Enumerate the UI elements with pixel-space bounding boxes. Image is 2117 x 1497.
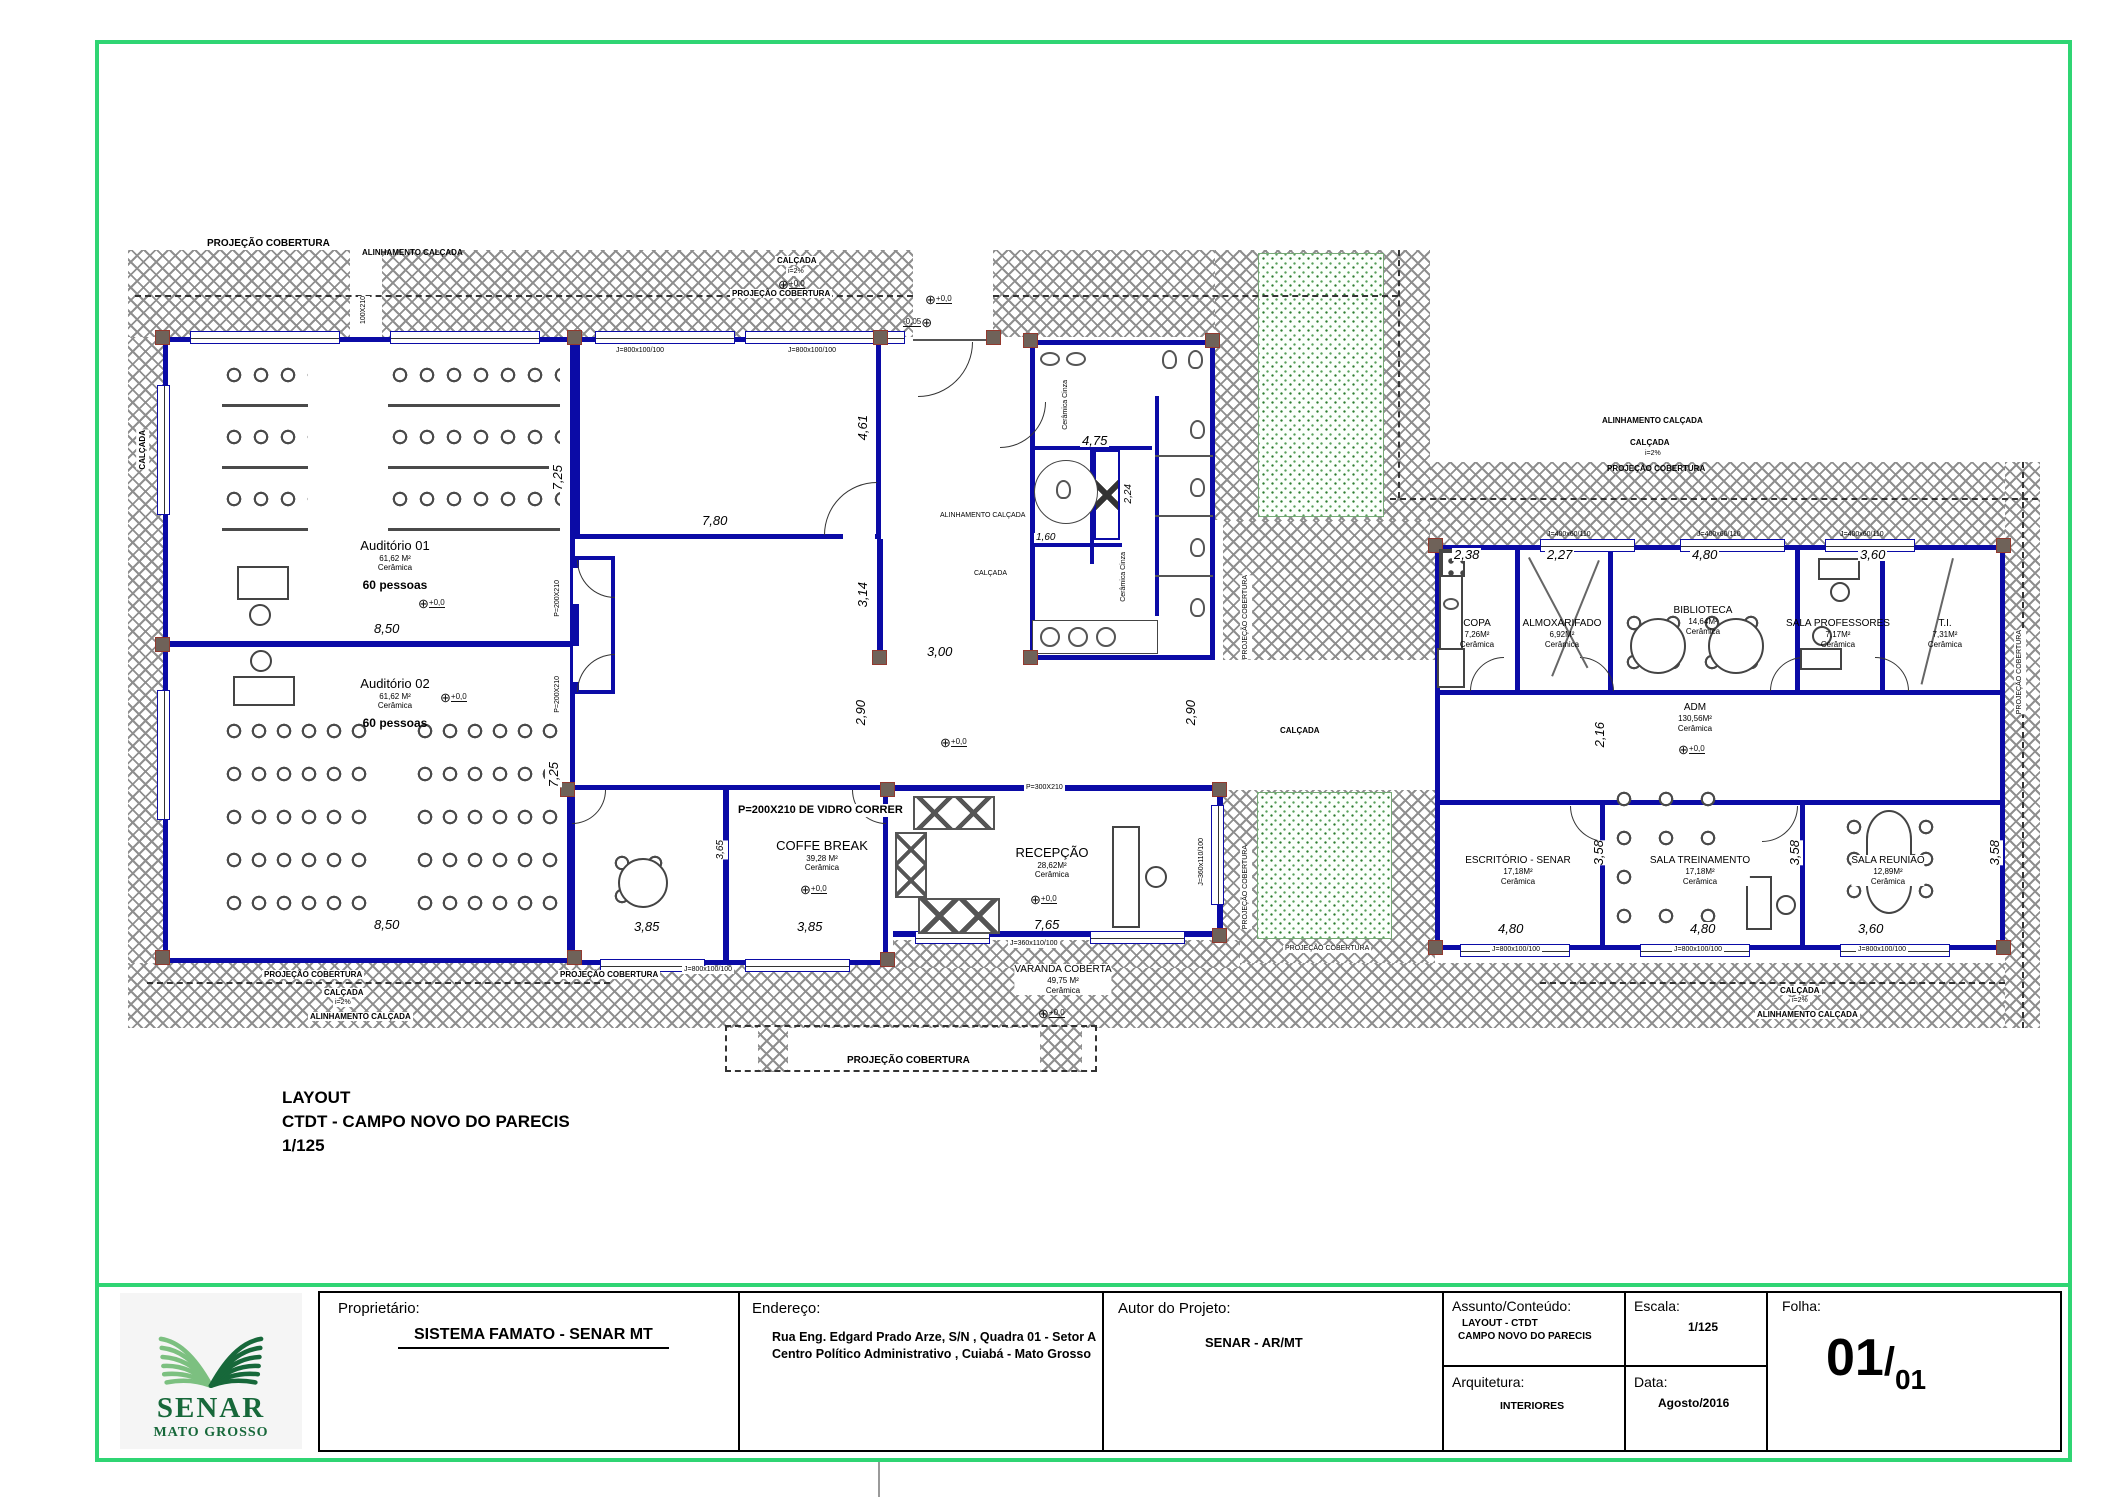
toilet [1190, 478, 1205, 497]
sheet-label: Folha: [1782, 1298, 1821, 1314]
fridge [1437, 648, 1465, 688]
shaft [1094, 450, 1120, 540]
site-label: CALÇADA [1778, 986, 1822, 995]
senar-logo: SENAR MATO GROSSO [120, 1293, 302, 1449]
toilet [1188, 350, 1203, 369]
door-tag: P=200X210 [552, 676, 564, 713]
sink [1068, 627, 1088, 647]
level-mark: ⊕+0,0 [1030, 892, 1057, 908]
projection-line [2022, 462, 2024, 1028]
dimension: 4,80 [1688, 922, 1717, 935]
dimension: 3,58 [1590, 840, 1607, 865]
column-cap [1428, 940, 1443, 955]
site-label: PROJEÇÃO COBERTURA [558, 970, 660, 979]
chair-grid [222, 718, 374, 930]
column-cap [567, 950, 582, 965]
titleblock-divider [1624, 1291, 1626, 1452]
level-mark: ⊕+0,0 [800, 882, 827, 898]
dimension: 3,85 [795, 920, 824, 933]
sheet-number: 01/01 [1826, 1328, 1926, 1396]
wall [1515, 545, 1520, 695]
column-cap [1023, 650, 1038, 665]
level-mark: -0,05⊕ [903, 315, 932, 331]
column-cap [880, 952, 895, 967]
subject-label: Assunto/Conteúdo: [1452, 1298, 1571, 1314]
sidewalk-hatch [382, 250, 913, 337]
projection-line [1398, 250, 1400, 498]
address-line2: Centro Político Administrativo , Cuiabá … [772, 1347, 1091, 1361]
room-label-copa: COPA 7,26M² Cerâmica [1460, 618, 1494, 649]
dimension: 3,85 [632, 920, 661, 933]
drawing-title-line1: LAYOUT [282, 1086, 570, 1110]
sofa [895, 832, 927, 898]
door-tag: P=200X210 DE VIDRO CORRER [736, 804, 905, 817]
stall-divider [1155, 455, 1213, 457]
window-tag: J=360x110/100 [1196, 838, 1208, 886]
room-label-varanda: VARANDA COBERTA 49,75 M² Cerâmica [1014, 964, 1111, 995]
sink [1066, 352, 1086, 366]
room-label-reuniao: SALA REUNIÃO 12,89M² Cerâmica [1851, 855, 1924, 886]
window [1090, 931, 1185, 944]
column-cap [1212, 928, 1227, 943]
site-label: PROJEÇÃO COBERTURA [205, 238, 332, 250]
chair [1776, 895, 1796, 915]
door-tag: 100X210 [358, 296, 370, 324]
projection-line [1390, 498, 2038, 500]
date-label: Data: [1634, 1374, 1667, 1390]
room-label-treinamento: SALA TREINAMENTO 17,18M² Cerâmica [1650, 855, 1750, 886]
sidewalk-hatch [128, 250, 350, 337]
sink [1040, 352, 1060, 366]
wc-finish-note: Cerâmica Cinza [1060, 380, 1072, 430]
chair [249, 604, 271, 626]
site-label: ALINHAMENTO CALÇADA [360, 248, 465, 257]
dimension: 7,80 [700, 514, 729, 527]
wall [1435, 690, 2005, 695]
room-label-almoxarifado: ALMOXARIFADO 6,92M² Cerâmica [1523, 618, 1602, 649]
dimension: 3,60 [1856, 922, 1885, 935]
sink [1040, 627, 1060, 647]
column-cap [155, 330, 170, 345]
senar-logo-name: SENAR [120, 1394, 302, 1423]
level-mark: ⊕+0,0 [1678, 742, 1705, 758]
site-label: ALINHAMENTO CALÇADA [1600, 416, 1705, 425]
room-label-professores: SALA PROFESSORES 7,17M² Cerâmica [1786, 618, 1890, 649]
dimension: 3,14 [854, 582, 871, 607]
titleblock-divider [1102, 1291, 1104, 1452]
window [595, 331, 735, 344]
site-label: CALÇADA [775, 256, 819, 265]
author-value: SENAR - AR/MT [1205, 1335, 1303, 1350]
kitchen-sink [1443, 598, 1459, 610]
room-label-escritorio: ESCRITÓRIO - SENAR 17,18M² Cerâmica [1465, 855, 1571, 886]
chair [1830, 582, 1850, 602]
level-mark: ⊕+0,0 [940, 735, 967, 751]
window-tag: J=400x60/110 [1695, 531, 1743, 539]
column-cap [560, 782, 575, 797]
site-label: PROJEÇÃO COBERTURA [262, 970, 364, 979]
drawing-title: LAYOUT CTDT - CAMPO NOVO DO PARECIS 1/12… [282, 1086, 570, 1157]
window-tag: J=800x100/100 [614, 347, 666, 355]
room-label-auditorio1: Auditório 01 61,62 M² Cerâmica 60 pessoa… [360, 538, 429, 592]
window-tag: J=800x100/100 [1856, 946, 1908, 954]
dimension: 8,50 [372, 918, 401, 931]
sidewalk-hatch [993, 250, 1215, 337]
garden-area [1257, 792, 1392, 939]
scale-value: 1/125 [1688, 1320, 1718, 1334]
wc-finish-note: Cerâmica Cinza [1118, 552, 1130, 602]
room-label-recepcao: RECEPÇÃO 28,62M² Cerâmica [1016, 845, 1089, 880]
chair-row [222, 362, 308, 407]
room-label-auditorio2: Auditório 02 61,62 M² Cerâmica 60 pessoa… [360, 676, 429, 730]
window-tag: J=800x100/100 [1672, 946, 1724, 954]
wall [163, 641, 575, 647]
room-label-biblioteca: BIBLIOTECA 14,64M² Cerâmica [1674, 605, 1733, 636]
window-tag: J=360x110/100 [1008, 940, 1060, 948]
window [1211, 805, 1224, 905]
chair-row [388, 424, 560, 469]
sink [1096, 627, 1116, 647]
sofa [913, 796, 995, 830]
reception-desk [1112, 826, 1140, 928]
toilet [1190, 538, 1205, 557]
room-label-coffebreak: COFFE BREAK 39,28 M² Cerâmica [776, 838, 868, 873]
site-label: PROJEÇÃO COBERTURA [730, 289, 832, 298]
site-label: PROJEÇÃO COBERTURA [845, 1055, 972, 1067]
wall [1800, 805, 1805, 950]
window-tag: J=800x100/100 [786, 347, 838, 355]
level-mark: ⊕+0,0 [440, 690, 467, 706]
stall-divider [1155, 515, 1213, 517]
site-label: i=2% [1790, 997, 1810, 1005]
chair-row [388, 486, 560, 531]
desk [1818, 558, 1860, 580]
door-tag: P=300X210 [1024, 784, 1065, 792]
teacher-desk [233, 676, 295, 706]
dimension: 2,24 [1122, 484, 1136, 503]
owner-label: Proprietário: [338, 1300, 420, 1317]
address-label: Endereço: [752, 1300, 820, 1317]
fold-mark [878, 1462, 880, 1497]
entrance-threshold [913, 339, 993, 341]
site-label: PROJEÇÃO COBERTURA [1283, 945, 1371, 953]
site-label: PROJEÇÃO COBERTURA [2014, 630, 2026, 714]
chair-row [388, 362, 560, 407]
column-cap [567, 330, 582, 345]
dimension: 2,27 [1545, 548, 1574, 561]
garden-area [1258, 253, 1384, 517]
site-label: ALINHAMENTO CALÇADA [308, 1012, 413, 1021]
round-table [618, 858, 668, 908]
room-label-ti: T.I. 7,31M² Cerâmica [1928, 618, 1962, 649]
dimension: 2,38 [1452, 548, 1481, 561]
wall [1030, 543, 1122, 547]
author-label: Autor do Projeto: [1118, 1300, 1231, 1317]
titleblock-divider [1442, 1365, 1766, 1367]
dimension: 4,75 [1080, 434, 1109, 447]
dimension: 1,60 [1034, 533, 1057, 543]
chair-row [222, 486, 308, 531]
site-label: PROJEÇÃO COBERTURA [1240, 845, 1252, 929]
site-label: ALINHAMENTO CALÇADA [938, 512, 1027, 520]
dimension: 3,60 [1858, 548, 1887, 561]
site-label: ALINHAMENTO CALÇADA [1755, 1010, 1860, 1019]
senar-logo-sub: MATO GROSSO [120, 1425, 302, 1441]
dimension: 4,80 [1690, 548, 1719, 561]
column-cap [1996, 940, 2011, 955]
site-label: PROJEÇÃO COBERTURA [1605, 464, 1707, 473]
site-label: PROJEÇÃO COBERTURA [1240, 575, 1252, 659]
discipline-label: Arquitetura: [1452, 1374, 1524, 1390]
column-cap [873, 330, 888, 345]
dimension: 3,65 [714, 840, 728, 859]
dimension: 7,25 [545, 762, 562, 787]
level-mark: ⊕+0,0 [925, 292, 952, 308]
column-cap [155, 637, 170, 652]
chair-grid [413, 718, 561, 930]
dimension: 2,90 [1182, 700, 1199, 725]
wall [877, 539, 883, 657]
window [190, 331, 340, 344]
titleblock-divider [1442, 1291, 1444, 1452]
site-label: CALÇADA [136, 430, 149, 470]
discipline-value: INTERIORES [1500, 1400, 1564, 1412]
column-cap [880, 782, 895, 797]
column-cap [1205, 333, 1220, 348]
window [157, 690, 170, 820]
sidewalk-hatch [1223, 520, 1435, 660]
titleblock-divider [738, 1291, 740, 1452]
window-tag: J=400x60/110 [1838, 531, 1886, 539]
door-tag: P=200X210 [552, 580, 564, 617]
site-label: i=2% [333, 999, 353, 1007]
site-label: CALÇADA [972, 570, 1009, 578]
stall-divider [1155, 575, 1213, 577]
projection-line [147, 982, 610, 984]
column-cap [986, 330, 1001, 345]
subject-line1: LAYOUT - CTDT [1462, 1318, 1538, 1329]
desk [1800, 648, 1842, 670]
site-label: CALÇADA [1278, 726, 1322, 735]
column-cap [155, 950, 170, 965]
titleblock-top-rule [99, 1283, 2068, 1287]
toilet [1162, 350, 1177, 369]
chair [250, 650, 272, 672]
teacher-desk [237, 566, 289, 600]
drawing-sheet: PROJEÇÃO COBERTURA ALINHAMENTO CALÇADA C… [0, 0, 2117, 1497]
toilet [1190, 598, 1205, 617]
dimension: 3,00 [925, 645, 954, 658]
site-label: i=2% [786, 268, 806, 276]
projection-line [1540, 982, 2005, 984]
dimension: 3,58 [1786, 840, 1803, 865]
scale-label: Escala: [1634, 1298, 1680, 1314]
column-cap [872, 650, 887, 665]
column-cap [1212, 782, 1227, 797]
sidewalk-hatch [128, 250, 163, 1010]
window [390, 331, 540, 344]
dimension: 2,16 [1591, 722, 1608, 747]
window-tag: J=800x100/100 [682, 966, 734, 974]
owner-value: SISTEMA FAMATO - SENAR MT [398, 1326, 669, 1349]
date-value: Agosto/2016 [1658, 1396, 1729, 1410]
chair [1145, 866, 1167, 888]
dimension: 4,61 [854, 415, 871, 440]
titleblock-divider [1766, 1291, 1768, 1452]
site-label: CALÇADA [1628, 438, 1672, 447]
wall [1155, 396, 1159, 616]
window-tag: J=800x100/100 [1490, 946, 1542, 954]
dimension: 8,50 [372, 622, 401, 635]
dimension: 3,58 [1986, 840, 2003, 865]
drawing-title-line2: CTDT - CAMPO NOVO DO PARECIS [282, 1110, 570, 1134]
site-label: i=2% [1643, 450, 1663, 458]
window-tag: J=400x60/110 [1545, 531, 1593, 539]
sofa [918, 898, 1000, 934]
chair-row [222, 424, 308, 469]
projection-line [993, 295, 1398, 297]
dimension: 2,90 [852, 700, 869, 725]
accessible-toilet [1056, 480, 1071, 499]
level-mark: ⊕+0,0 [418, 596, 445, 612]
toilet [1190, 420, 1205, 439]
drawing-title-line3: 1/125 [282, 1134, 570, 1158]
column-cap [1023, 333, 1038, 348]
wall [723, 785, 729, 965]
senar-logo-icon [136, 1297, 286, 1389]
site-label: CALÇADA [322, 988, 366, 997]
address-line1: Rua Eng. Edgard Prado Arze, S/N , Quadra… [772, 1330, 1096, 1344]
dimension: 7,65 [1032, 918, 1061, 931]
dimension: 7,25 [549, 465, 566, 490]
level-mark: ⊕+0,0 [1038, 1006, 1065, 1022]
column-cap [1996, 538, 2011, 553]
window [745, 959, 850, 972]
window [157, 385, 170, 515]
subject-line2: CAMPO NOVO DO PARECIS [1458, 1331, 1592, 1342]
room-label-adm: ADM 130,56M² Cerâmica [1678, 702, 1712, 733]
dimension: 4,80 [1496, 922, 1525, 935]
